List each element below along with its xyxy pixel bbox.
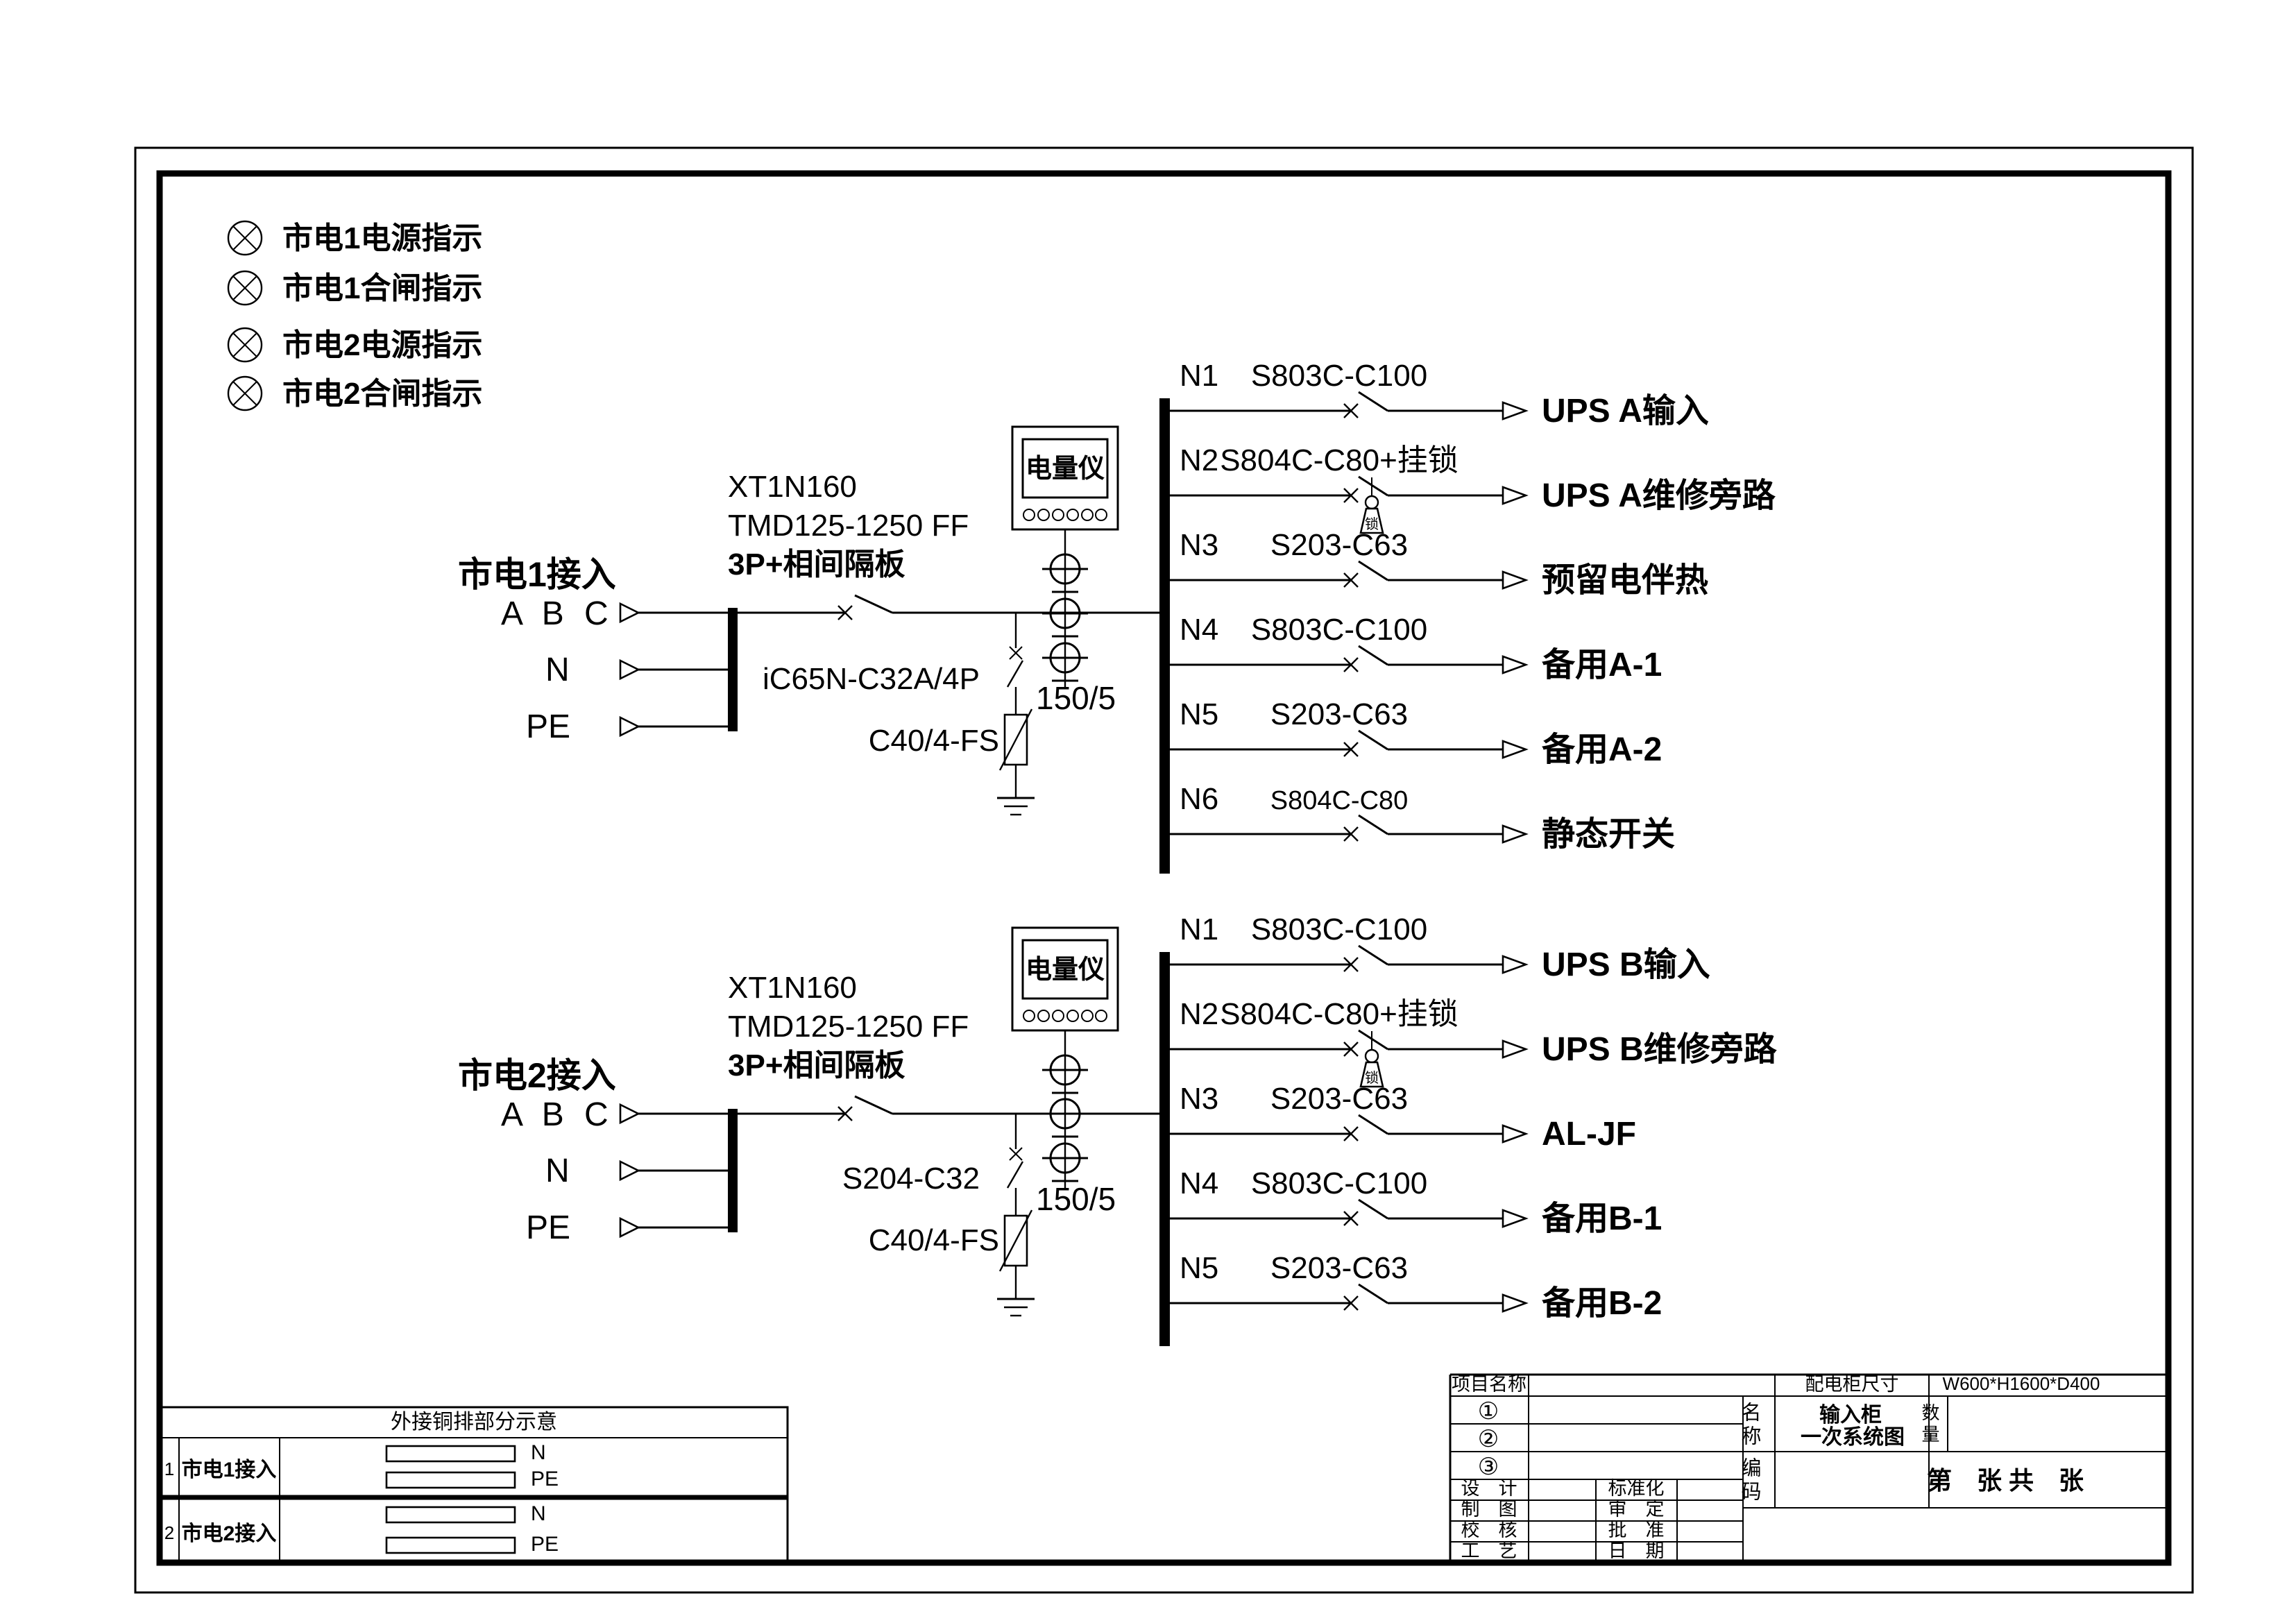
- load-arrow-icon: [1503, 402, 1526, 419]
- drawing-sheet: 市电1电源指示 市电1合闸指示 市电2电源指示 市电2合闸指示 市电1接入 A …: [0, 0, 2296, 1623]
- name-value-line2: 一次系统图: [1801, 1425, 1905, 1449]
- copper-bar-icon: [386, 1446, 515, 1461]
- copper-bar-icon: [386, 1507, 515, 1522]
- item-3: ③: [1478, 1454, 1499, 1480]
- copper-bar-table: 外接铜排部分示意 1 市电1接入 N PE 2 市电2接入 N PE: [160, 1407, 788, 1563]
- code-label: 编码: [1738, 1457, 1762, 1504]
- row-model: S803C-C100: [1251, 912, 1427, 946]
- feeder-row-N5: N5 S203-C63 备用B-2: [1170, 1251, 1662, 1322]
- row-name: 市电2接入: [182, 1522, 277, 1545]
- name-label: 名称: [1738, 1402, 1762, 1449]
- draft-label: 制 图: [1461, 1499, 1517, 1520]
- row-id: N2: [1180, 443, 1218, 477]
- busbar: [1159, 398, 1170, 874]
- quantity-label: 数量: [1919, 1403, 1940, 1446]
- power-meter: 电量仪 150/5: [1012, 427, 1118, 716]
- feeder-row-N4: N4 S803C-C100 备用A-1: [1170, 613, 1662, 683]
- row-load: UPS B维修旁路: [1542, 1031, 1778, 1068]
- row-no: 1: [164, 1459, 174, 1479]
- spd-label: C40/4-FS: [869, 724, 999, 758]
- row-load: 备用B-2: [1542, 1285, 1662, 1322]
- row-id: N6: [1180, 782, 1218, 816]
- copper-bar-icon: [386, 1472, 515, 1488]
- feeder-row-N3: N3 S203-C63 预留电伴热: [1170, 528, 1708, 599]
- row-load: 备用A-1: [1542, 647, 1662, 683]
- load-arrow-icon: [1503, 1125, 1526, 1142]
- indicator-lamp-icon: [228, 271, 262, 305]
- ct-ratio-label: 150/5: [1036, 1181, 1116, 1217]
- check-label: 校 核: [1461, 1520, 1517, 1540]
- row-no: 2: [164, 1522, 174, 1543]
- bar-label: N: [531, 1502, 546, 1525]
- approve-label: 批 准: [1608, 1520, 1665, 1540]
- row-id: N4: [1180, 1166, 1218, 1200]
- craft-label: 工 艺: [1461, 1540, 1517, 1561]
- main-breaker-frame: TMD125-1250 FF: [728, 509, 969, 543]
- main-breaker-note: 3P+相间隔板: [728, 547, 905, 581]
- feed-copper-bar: [728, 1109, 738, 1232]
- load-arrow-icon: [1503, 1210, 1526, 1227]
- row-load: UPS A输入: [1542, 393, 1709, 430]
- breaker-blade: [855, 595, 892, 613]
- name-value-line1: 输入柜: [1819, 1404, 1882, 1427]
- row-load: UPS B输入: [1542, 946, 1710, 983]
- row-load: 预留电伴热: [1542, 562, 1708, 599]
- copper-bar-icon: [386, 1538, 515, 1553]
- table-title: 外接铜排部分示意: [391, 1411, 557, 1434]
- row-id: N4: [1180, 613, 1218, 647]
- schematic-canvas: 市电1电源指示 市电1合闸指示 市电2电源指示 市电2合闸指示 市电1接入 A …: [0, 0, 2296, 1623]
- power-meter: 电量仪 150/5: [1012, 928, 1118, 1217]
- row-model: S203-C63: [1270, 1082, 1408, 1116]
- spd-breaker-label: iC65N-C32A/4P: [763, 662, 980, 696]
- load-arrow-icon: [1503, 487, 1526, 504]
- feed-arrow-icon: [620, 661, 638, 679]
- pe-label: PE: [526, 1209, 570, 1246]
- padlock-icon: 锁: [1361, 1031, 1383, 1087]
- meter-label: 电量仪: [1026, 955, 1105, 985]
- spd-branch: S204-C32 C40/4-FS: [842, 1114, 1035, 1316]
- review-label: 审 定: [1608, 1499, 1665, 1520]
- main-breaker-note: 3P+相间隔板: [728, 1048, 905, 1082]
- feed-copper-bar: [728, 608, 738, 731]
- row-id: N2: [1180, 997, 1218, 1031]
- ct-ratio-label: 150/5: [1036, 680, 1116, 716]
- feed-title: 市电1接入: [458, 555, 616, 594]
- item-1: ①: [1478, 1398, 1499, 1425]
- feeder-row-N4: N4 S803C-C100 备用B-1: [1170, 1166, 1662, 1237]
- phase-label: A B C: [501, 1096, 614, 1133]
- breaker-blade: [855, 1096, 892, 1114]
- padlock-icon: 锁: [1361, 477, 1383, 533]
- row-load: 静态开关: [1542, 816, 1675, 853]
- title-block: 项目名称 配电柜尺寸 W600*H1600*D400 ① ② ③ 设 计 制 图…: [1450, 1373, 2168, 1563]
- indicator-label: 市电2合闸指示: [282, 377, 482, 411]
- feeder-row-N2: N2 S804C-C80+挂锁 UPS B维修旁路 锁: [1170, 997, 1778, 1087]
- row-load: AL-JF: [1542, 1116, 1636, 1153]
- spd-branch: iC65N-C32A/4P C40/4-FS: [763, 613, 1035, 815]
- row-id: N5: [1180, 697, 1218, 731]
- row-model: S203-C63: [1270, 528, 1408, 562]
- load-arrow-icon: [1503, 956, 1526, 973]
- row-model: S203-C63: [1270, 1251, 1408, 1285]
- row-id: N1: [1180, 359, 1218, 393]
- feeder-row-N6: N6 S804C-C80 静态开关: [1170, 782, 1675, 853]
- row-id: N3: [1180, 528, 1218, 562]
- feed-arrow-icon: [620, 1218, 638, 1237]
- row-id: N1: [1180, 912, 1218, 946]
- feeder-row-N5: N5 S203-C63 备用A-2: [1170, 697, 1662, 768]
- sheet-number-text: 第 张 共 张: [1927, 1466, 2084, 1495]
- indicator-lamp-icon: [228, 328, 262, 362]
- bar-label: PE: [531, 1533, 559, 1556]
- breaker-blade: [1007, 661, 1023, 687]
- section-mains-2: 市电2接入 A B C N PE XT1N160 TMD125-1250 FF …: [458, 912, 1778, 1346]
- feeder-row-N2: N2 S804C-C80+挂锁 UPS A维修旁路 锁: [1170, 443, 1776, 533]
- feeder-row-N3: N3 S203-C63 AL-JF: [1170, 1082, 1636, 1153]
- row-load: 备用A-2: [1542, 731, 1662, 768]
- row-model: S804C-C80+挂锁: [1220, 443, 1459, 477]
- load-arrow-icon: [1503, 572, 1526, 588]
- pe-label: PE: [526, 708, 570, 745]
- indicator-lamp-icon: [228, 221, 262, 255]
- row-load: 备用B-1: [1542, 1200, 1662, 1237]
- indicator-lamp-list: 市电1电源指示 市电1合闸指示 市电2电源指示 市电2合闸指示: [228, 221, 482, 411]
- row-model: S804C-C80: [1270, 786, 1409, 815]
- standardization-label: 标准化: [1608, 1478, 1665, 1499]
- spd-breaker-label: S204-C32: [842, 1162, 980, 1196]
- row-id: N5: [1180, 1251, 1218, 1285]
- cabinet-size-value: W600*H1600*D400: [1943, 1373, 2100, 1394]
- design-label: 设 计: [1461, 1478, 1517, 1499]
- indicator-lamp-icon: [228, 377, 262, 410]
- load-arrow-icon: [1503, 741, 1526, 758]
- feeder-row-N1: N1 S803C-C100 UPS B输入: [1170, 912, 1710, 983]
- load-arrow-icon: [1503, 656, 1526, 673]
- main-breaker-frame: TMD125-1250 FF: [728, 1010, 969, 1044]
- meter-label: 电量仪: [1026, 454, 1105, 484]
- row-load: UPS A维修旁路: [1542, 477, 1776, 514]
- bar-label: PE: [531, 1468, 559, 1490]
- load-arrow-icon: [1503, 1295, 1526, 1311]
- row-name: 市电1接入: [182, 1458, 277, 1481]
- feed-title: 市电2接入: [458, 1056, 616, 1095]
- section-mains-1: 市电1接入 A B C N PE XT1N160 TMD125-1250 FF …: [458, 359, 1776, 874]
- phase-label: A B C: [501, 595, 614, 632]
- indicator-label: 市电2电源指示: [282, 328, 482, 362]
- load-arrow-icon: [1503, 1041, 1526, 1057]
- main-breaker-model: XT1N160: [728, 470, 857, 504]
- main-breaker-model: XT1N160: [728, 971, 857, 1005]
- neutral-label: N: [545, 652, 570, 688]
- neutral-label: N: [545, 1153, 570, 1189]
- row-model: S803C-C100: [1251, 613, 1427, 647]
- breaker-blade: [1007, 1162, 1023, 1188]
- row-model: S803C-C100: [1251, 1166, 1427, 1200]
- indicator-label: 市电1电源指示: [282, 221, 482, 255]
- row-model: S803C-C100: [1251, 359, 1427, 393]
- date-label: 日 期: [1608, 1540, 1665, 1561]
- row-model: S203-C63: [1270, 697, 1408, 731]
- item-2: ②: [1478, 1426, 1499, 1452]
- feeder-row-N1: N1 S803C-C100 UPS A输入: [1170, 359, 1709, 430]
- busbar: [1159, 952, 1170, 1346]
- row-id: N3: [1180, 1082, 1218, 1116]
- feed-arrow-icon: [620, 1162, 638, 1180]
- feed-arrow-icon: [620, 1105, 638, 1123]
- load-arrow-icon: [1503, 826, 1526, 842]
- cabinet-size-label: 配电柜尺寸: [1805, 1374, 1899, 1395]
- feed-arrow-icon: [620, 717, 638, 736]
- indicator-label: 市电1合闸指示: [282, 271, 482, 305]
- spd-label: C40/4-FS: [869, 1223, 999, 1257]
- bar-label: N: [531, 1441, 546, 1464]
- row-model: S804C-C80+挂锁: [1220, 997, 1459, 1031]
- project-name-label: 项目名称: [1452, 1374, 1527, 1395]
- feed-arrow-icon: [620, 604, 638, 622]
